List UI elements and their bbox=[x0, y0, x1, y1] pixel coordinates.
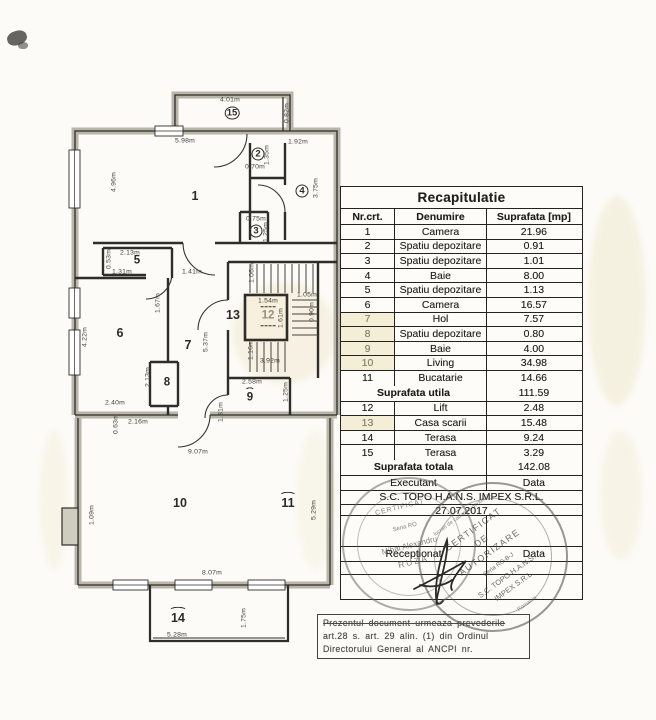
note-line: art.28 s. art. 29 alin. (1) din Ordinul bbox=[323, 630, 524, 643]
scanned-floorplan-page: { "table": { "title": "Recapitulatie", "… bbox=[0, 0, 656, 720]
signature bbox=[0, 0, 656, 720]
note-line: Prezentul document urmeaza prevederile bbox=[323, 617, 524, 630]
legal-note-box: Prezentul document urmeaza prevederile a… bbox=[317, 614, 530, 659]
note-line: Directorului General al ANCPI nr. bbox=[323, 643, 524, 656]
